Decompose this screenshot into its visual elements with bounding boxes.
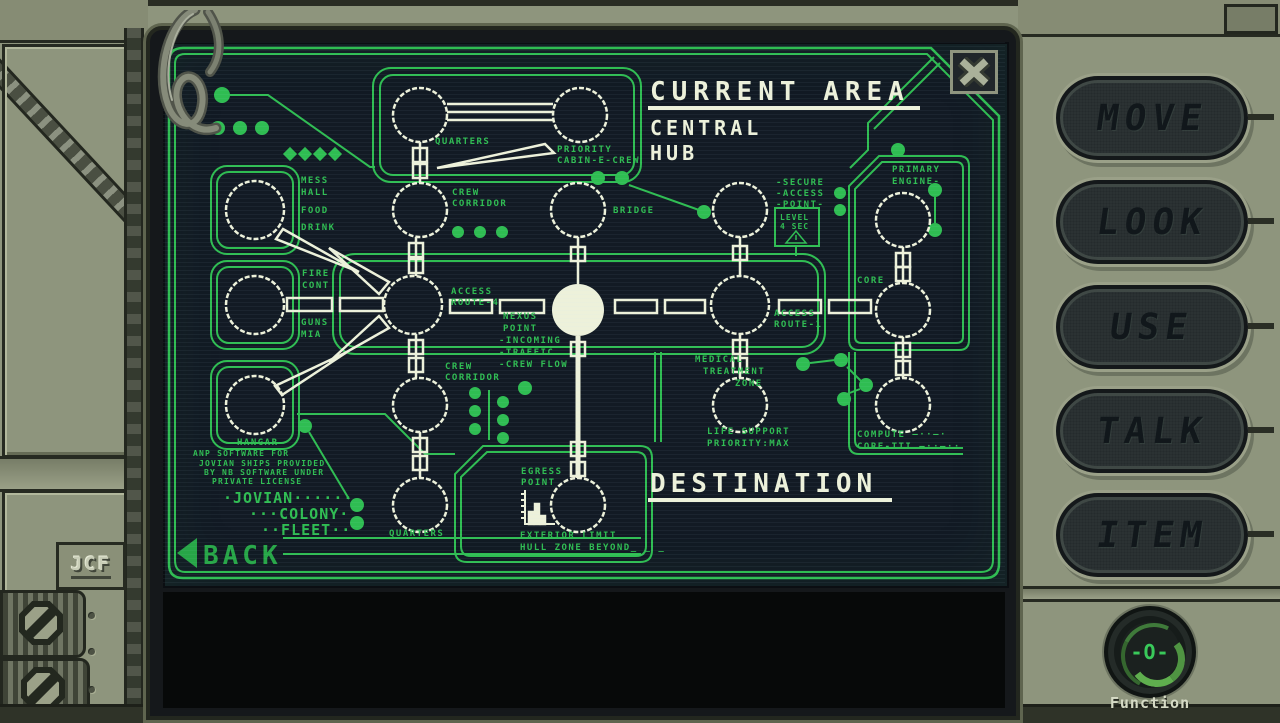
close-icon <box>957 57 991 87</box>
button-label: USE <box>1108 307 1197 348</box>
label-egress-point: EGRESS <box>521 467 563 477</box>
map-node-crew-corridor-mid[interactable] <box>393 378 447 432</box>
label-license: JOVIAN SHIPS PROVIDED <box>199 459 325 468</box>
label-quarters-top: QUARTERS <box>435 137 490 147</box>
label-bridge: BRIDGE <box>613 206 655 216</box>
label-license: ANP SOFTWARE FOR <box>193 449 289 458</box>
label-level-sec: LEVEL <box>780 213 809 222</box>
label-priority-cabin: CABIN-E-CREW <box>557 156 640 166</box>
label-access-route-1: ROUTE-1 <box>774 320 822 330</box>
label-primary-engine: ENGINE- <box>892 177 940 187</box>
sidebar-button-talk[interactable]: TALK <box>1056 389 1248 473</box>
button-label: LOOK <box>1094 202 1210 243</box>
map-node-bridge[interactable] <box>551 183 605 237</box>
button-connector <box>1248 114 1274 120</box>
label-mess-hall: FOOD <box>301 206 329 216</box>
label-mess-hall: DRINK <box>301 223 336 233</box>
map-node-access-route-4[interactable] <box>384 276 442 334</box>
function-label: Function <box>1094 694 1206 712</box>
map-node-egress-point[interactable] <box>551 478 605 532</box>
frame-corner-tab <box>1224 4 1278 34</box>
label-egress-point: POINT <box>521 478 556 488</box>
label-nexus-point: -CREW FLOW <box>499 360 568 370</box>
label-guns-mia: GUNS <box>301 318 329 328</box>
label-nexus-point: -TRAFFIC <box>499 348 554 358</box>
map-node-nexus-current[interactable] <box>552 284 604 336</box>
map-node-compute-core[interactable] <box>876 378 930 432</box>
frame-conduit <box>124 28 144 716</box>
function-dial[interactable]: -O- <box>1104 606 1196 698</box>
map-node-secure-access[interactable] <box>713 183 767 237</box>
label-access-route-4: ACCESS <box>451 287 493 297</box>
console-area <box>163 592 1005 708</box>
label-compute-core: COMPUTE —··—· <box>857 430 947 440</box>
label-exterior-limit: HULL ZONE BEYOND_ _ _ <box>520 543 665 553</box>
rivet <box>88 686 95 693</box>
map-node-mess-hall[interactable] <box>226 181 284 239</box>
label-level-sec: 4 SEC <box>780 222 809 231</box>
current-area-value: HUB <box>650 141 698 165</box>
label-medical: MEDICAL <box>695 355 743 365</box>
current-area-value: CENTRAL <box>650 116 762 140</box>
label-mess-hall: MESS <box>301 176 329 186</box>
label-compute-core: CORE-TTI —··—·· <box>857 442 961 452</box>
map-node-core[interactable] <box>876 283 930 337</box>
back-button-label[interactable]: BACK <box>203 541 282 571</box>
ship-map: CURRENT AREACENTRALHUBDESTINATIONBACKQUA… <box>163 42 1005 584</box>
frame-emboss-plate: JCF <box>56 542 126 590</box>
label-primary-engine: PRIMARY <box>892 165 940 175</box>
cable-icon <box>150 10 280 150</box>
game-screen: JCF <box>0 0 1280 720</box>
label-medical: ZONE <box>735 379 763 389</box>
button-label: TALK <box>1094 411 1210 452</box>
map-node-crew-corridor-top[interactable] <box>393 183 447 237</box>
label-nexus-point: NEXUS <box>503 312 538 322</box>
label-crew-corridor-mid: CORRIDOR <box>445 373 500 383</box>
label-priority-cabin: PRIORITY <box>557 145 612 155</box>
button-label: ITEM <box>1094 515 1210 556</box>
label-quarters-bottom: QUARTERS <box>389 529 444 539</box>
emboss-text: JCF <box>71 553 111 579</box>
label-secure-access: -SECURE <box>776 178 824 188</box>
label-nexus-point: POINT <box>503 324 538 334</box>
label-license: BY NB SOFTWARE UNDER <box>204 468 324 477</box>
button-connector <box>1248 218 1274 224</box>
dial-glyph: -O- <box>1130 640 1169 664</box>
map-node-priority-cabin[interactable] <box>553 88 607 142</box>
label-mess-hall: HALL <box>301 188 329 198</box>
button-connector <box>1248 323 1274 329</box>
destination-title: DESTINATION <box>650 469 877 499</box>
map-node-fire-cont[interactable] <box>226 276 284 334</box>
label-hangar: HANGAR <box>237 438 279 448</box>
button-connector <box>1248 531 1274 537</box>
map-node-quarters-bottom[interactable] <box>393 478 447 532</box>
bolt-icon <box>19 601 63 645</box>
button-label: MOVE <box>1094 98 1210 139</box>
label-crew-corridor-top: CREW <box>452 188 480 198</box>
label-access-route-4: ROUTE-4 <box>451 298 499 308</box>
button-connector <box>1248 427 1274 433</box>
label-jovian-fleet: ··FLEET·· <box>261 521 351 539</box>
label-core: CORE <box>857 276 885 286</box>
map-node-access-route-1[interactable] <box>711 276 769 334</box>
label-crew-corridor-top: CORRIDOR <box>452 199 507 209</box>
frame-left-panel-upper <box>2 44 134 458</box>
map-node-quarters-top[interactable] <box>393 88 447 142</box>
current-area-title: CURRENT AREA <box>650 77 910 107</box>
sidebar-button-use[interactable]: USE <box>1056 285 1248 369</box>
label-license: PRIVATE LICENSE <box>212 477 302 486</box>
rivet <box>88 612 95 619</box>
label-secure-access: -POINT- <box>776 200 824 210</box>
sidebar-button-look[interactable]: LOOK <box>1056 180 1248 264</box>
sidebar-button-move[interactable]: MOVE <box>1056 76 1248 160</box>
label-crew-corridor-mid: CREW <box>445 362 473 372</box>
back-arrow-icon[interactable] <box>177 538 197 568</box>
frame-right-groove <box>1020 586 1280 602</box>
bolt-plate-upper <box>0 590 86 658</box>
sidebar-button-item[interactable]: ITEM <box>1056 493 1248 577</box>
label-access-route-1: ACCESS <box>774 309 816 319</box>
label-secure-access: -ACCESS <box>776 189 824 199</box>
close-button[interactable] <box>950 50 998 94</box>
label-fire-cont: FIRE <box>302 269 330 279</box>
label-life-support: PRIORITY:MAX <box>707 439 790 449</box>
label-nexus-point: -INCOMING <box>499 336 561 346</box>
label-exterior-limit: EXTERIOR LIMIT <box>520 531 617 541</box>
rivet <box>88 648 95 655</box>
label-guns-mia: MIA <box>301 330 322 340</box>
map-node-primary-engine[interactable] <box>876 193 930 247</box>
label-medical: TREATMENT <box>703 367 765 377</box>
label-life-support: LIFE SUPPORT <box>707 427 790 437</box>
label-fire-cont: CONT <box>302 281 330 291</box>
